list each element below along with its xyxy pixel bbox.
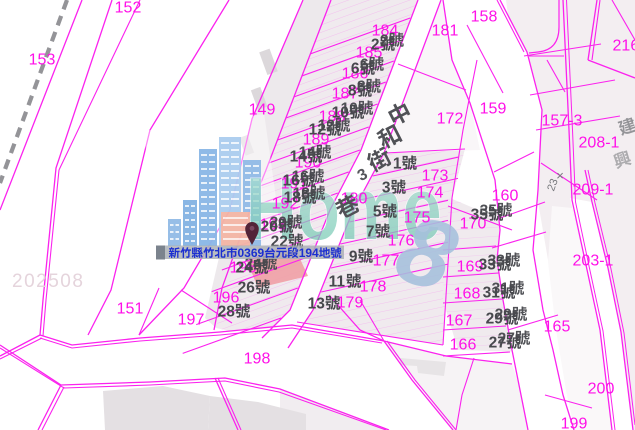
svg-text:18: 18 (284, 190, 302, 207)
svg-text:167: 167 (446, 313, 473, 330)
svg-text:194: 194 (299, 246, 319, 260)
svg-text:151: 151 (117, 301, 144, 318)
svg-text:177: 177 (373, 253, 400, 270)
svg-text:11: 11 (329, 274, 346, 291)
svg-text:198: 198 (244, 351, 271, 368)
svg-text:35: 35 (471, 207, 489, 224)
svg-text:178: 178 (360, 279, 387, 296)
svg-text:173: 173 (422, 168, 449, 185)
svg-text:209-1: 209-1 (573, 182, 614, 199)
svg-text:175: 175 (404, 210, 431, 227)
svg-text:181: 181 (432, 23, 459, 40)
svg-text:33: 33 (479, 257, 497, 274)
svg-text:216-1: 216-1 (613, 38, 635, 55)
svg-text:176: 176 (388, 233, 415, 250)
svg-text:157-3: 157-3 (542, 113, 583, 130)
svg-text:199: 199 (561, 416, 588, 430)
svg-text:179: 179 (337, 295, 364, 312)
svg-text:8: 8 (348, 83, 357, 100)
svg-text:159: 159 (480, 101, 507, 118)
svg-text:29: 29 (486, 311, 504, 328)
svg-text:31: 31 (483, 285, 501, 302)
svg-text:13: 13 (308, 296, 326, 313)
svg-text:6: 6 (351, 61, 360, 78)
svg-text:166: 166 (450, 337, 477, 354)
svg-text:149: 149 (249, 102, 276, 119)
svg-text:14: 14 (290, 149, 308, 166)
svg-text:165: 165 (544, 319, 571, 336)
svg-text:200: 200 (588, 381, 615, 398)
svg-text:3: 3 (382, 180, 391, 197)
svg-text:158: 158 (471, 9, 498, 26)
svg-text:203-1: 203-1 (573, 253, 614, 270)
svg-text:152: 152 (115, 0, 142, 17)
svg-text:12: 12 (309, 122, 326, 139)
svg-text:2: 2 (371, 37, 380, 54)
svg-text:208-1: 208-1 (579, 135, 620, 152)
svg-text:168: 168 (454, 286, 481, 303)
svg-text:197: 197 (178, 312, 205, 329)
svg-text:0369: 0369 (238, 246, 265, 260)
svg-text:26: 26 (238, 280, 256, 297)
svg-text:1: 1 (393, 156, 402, 173)
svg-text:202508: 202508 (12, 271, 84, 292)
svg-text:27: 27 (489, 335, 506, 352)
svg-text:172: 172 (437, 111, 464, 128)
svg-text:174: 174 (417, 185, 444, 202)
svg-text:7: 7 (366, 224, 375, 241)
svg-text:9: 9 (349, 249, 358, 266)
svg-text:5: 5 (373, 204, 382, 221)
svg-text:24: 24 (236, 260, 254, 277)
svg-text:153: 153 (29, 52, 56, 69)
svg-text:28: 28 (218, 304, 236, 321)
